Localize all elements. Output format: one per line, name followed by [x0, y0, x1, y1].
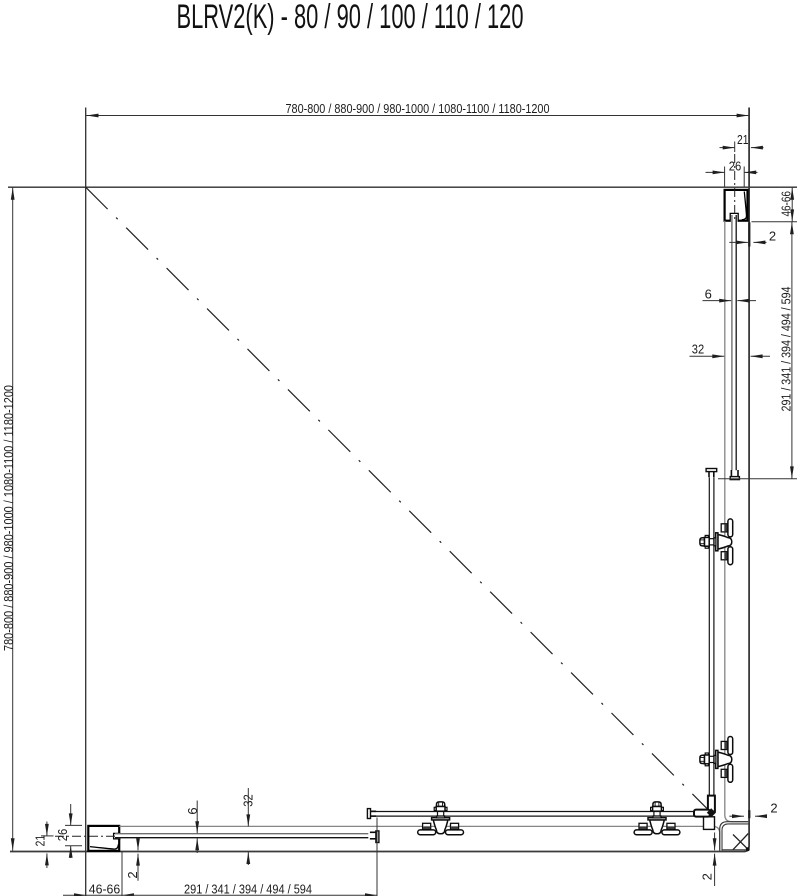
svg-text:26: 26 — [729, 158, 742, 173]
svg-text:32: 32 — [692, 341, 704, 356]
svg-text:21: 21 — [737, 132, 749, 147]
svg-text:2: 2 — [770, 800, 777, 815]
svg-text:2: 2 — [769, 229, 776, 244]
svg-text:780-800 / 880-900 / 980-1000 /: 780-800 / 880-900 / 980-1000 / 1080-1100… — [286, 101, 550, 116]
svg-text:6: 6 — [185, 807, 200, 814]
svg-text:32: 32 — [240, 794, 255, 806]
svg-text:BLRV2(K) - 80 / 90 / 100 / 110: BLRV2(K) - 80 / 90 / 100 / 110 / 120 — [177, 0, 524, 36]
svg-text:21: 21 — [33, 835, 48, 847]
svg-text:6: 6 — [705, 286, 712, 301]
svg-text:780-800 / 880-900 / 980-1000 /: 780-800 / 880-900 / 980-1000 / 1080-1100… — [1, 385, 16, 651]
svg-text:46-66: 46-66 — [779, 191, 794, 217]
svg-text:2: 2 — [125, 871, 140, 878]
svg-text:291 / 341 / 394 / 494 / 594: 291 / 341 / 394 / 494 / 594 — [778, 287, 793, 412]
svg-text:291 / 341 / 394 / 494 / 594: 291 / 341 / 394 / 494 / 594 — [184, 881, 312, 896]
svg-text:26: 26 — [55, 829, 70, 842]
svg-text:46-66: 46-66 — [89, 882, 121, 896]
svg-text:2: 2 — [699, 873, 714, 880]
